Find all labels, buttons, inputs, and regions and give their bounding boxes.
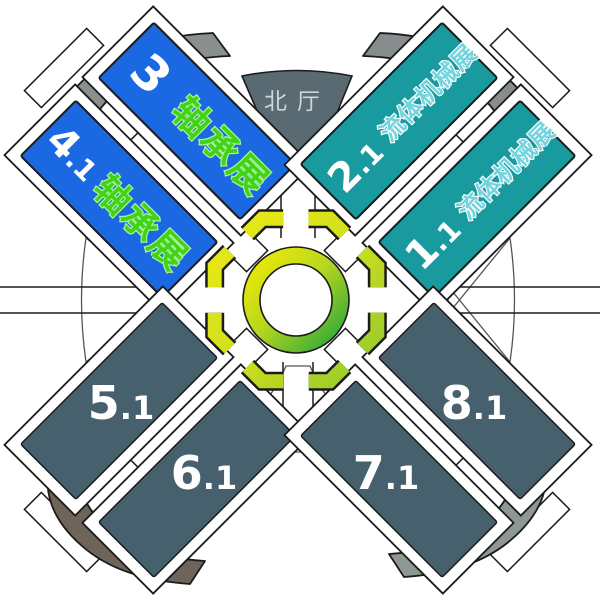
floor-map-svg: 北厅 3 轴承展 4.1 轴承展 2.1 流体机械展 1.1 流体机械展 (0, 0, 600, 600)
north-hall-label: 北厅 (264, 89, 330, 115)
ring-inner (260, 264, 332, 336)
central-ring[interactable] (243, 247, 349, 353)
expo-floor-map: 北厅 3 轴承展 4.1 轴承展 2.1 流体机械展 1.1 流体机械展 (0, 0, 600, 600)
